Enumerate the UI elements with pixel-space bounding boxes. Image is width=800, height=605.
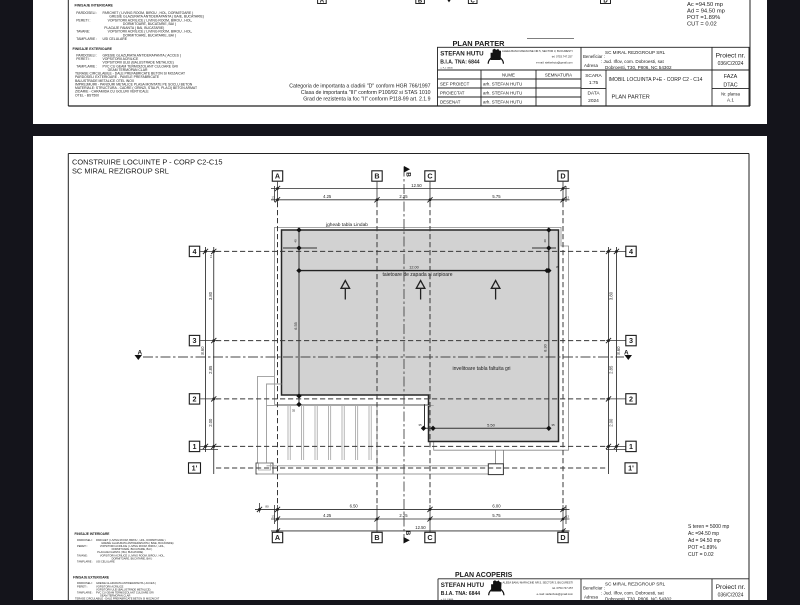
svg-text:B: B: [405, 172, 412, 177]
svg-text:e-mail: stefanhutu@gmail.com: e-mail: stefanhutu@gmail.com: [537, 592, 574, 596]
svg-text:2: 2: [629, 395, 633, 404]
svg-text:POT =1.89%: POT =1.89%: [687, 15, 720, 21]
svg-text:6.55: 6.55: [294, 322, 298, 329]
svg-text:B: B: [374, 172, 379, 181]
svg-text:35: 35: [418, 423, 422, 427]
svg-text:D: D: [560, 533, 565, 542]
svg-text:arh. STEFAN HUTU: arh. STEFAN HUTU: [483, 91, 522, 96]
svg-text:5.75: 5.75: [492, 194, 501, 199]
svg-text:13: 13: [566, 515, 570, 519]
svg-text:Adresa: Adresa: [584, 594, 598, 599]
svg-text:3: 3: [629, 336, 633, 345]
svg-text:35: 35: [292, 409, 296, 413]
svg-text:PERETI :: PERETI :: [77, 544, 88, 548]
svg-text:5.50: 5.50: [487, 422, 496, 427]
svg-text:TAMPLARIE :: TAMPLARIE :: [77, 591, 93, 595]
svg-text:tel. 0753.747.257: tel. 0753.747.257: [552, 586, 573, 590]
svg-text:6.50: 6.50: [350, 504, 359, 509]
svg-text:C: C: [471, 0, 476, 5]
svg-text:C: C: [427, 172, 432, 181]
svg-text:4.25: 4.25: [323, 194, 332, 199]
svg-text:1: 1: [193, 442, 197, 451]
svg-text:ALEEA BANU MARACINE NR.5, SEC: ALEEA BANU MARACINE NR.5, SECTOR 3, BUCU…: [503, 580, 574, 584]
svg-text:2.85: 2.85: [609, 365, 614, 374]
svg-text:IMOBIL LOCUINTA P+E - CORP C2: IMOBIL LOCUINTA P+E - CORP C2 - C14: [609, 77, 703, 83]
svg-text:: Jud. Ilfov, com. Dobroesti,: : Jud. Ilfov, com. Dobroesti, sat: [601, 590, 664, 595]
svg-text:3.80: 3.80: [208, 291, 213, 300]
svg-text:FINISAJE INTERIOARE: FINISAJE INTERIOARE: [75, 3, 114, 7]
svg-text:e-mail: stefanhutu@gmail.com: e-mail: stefanhutu@gmail.com: [536, 60, 573, 64]
svg-text:tel. 0753.747.257: tel. 0753.747.257: [552, 55, 573, 59]
svg-text:PLAN ACOPERIS: PLAN ACOPERIS: [455, 572, 513, 579]
svg-text:DORMITOARE, BUCATARIE, BAI ): DORMITOARE, BUCATARIE, BAI ): [112, 556, 153, 560]
svg-text:80: 80: [265, 505, 269, 509]
svg-text:B: B: [404, 531, 411, 536]
svg-text:SC MIRAL REZIGROUP SRL: SC MIRAL REZIGROUP SRL: [605, 50, 666, 55]
svg-text:Ad = 94.50 mp: Ad = 94.50 mp: [688, 538, 721, 544]
svg-text:PLAN PARTER: PLAN PARTER: [453, 39, 506, 48]
svg-text:3: 3: [193, 336, 197, 345]
svg-text:12.00: 12.00: [409, 266, 419, 270]
svg-text:SEMNATURA: SEMNATURA: [545, 73, 572, 78]
svg-text:40: 40: [294, 239, 298, 243]
svg-text:FINISAJE EXTERIOARE: FINISAJE EXTERIOARE: [73, 47, 113, 51]
svg-text:2.00: 2.00: [208, 418, 213, 427]
svg-text:USI CELULARE: USI CELULARE: [96, 560, 115, 564]
svg-text:5.75: 5.75: [492, 513, 501, 518]
svg-text:Adresa: Adresa: [584, 63, 598, 68]
svg-text:1: 1: [629, 442, 633, 451]
svg-text:jgheab tabla Lindab: jgheab tabla Lindab: [325, 222, 368, 228]
svg-text:B: B: [418, 0, 423, 5]
svg-text:PERETI :: PERETI :: [76, 18, 90, 22]
svg-text:12.50: 12.50: [411, 183, 422, 188]
svg-text:u. F-1 13606: u. F-1 13606: [440, 67, 453, 69]
svg-text:A: A: [275, 172, 280, 181]
svg-text:2024: 2024: [588, 98, 599, 104]
svg-text:1': 1': [628, 464, 634, 473]
svg-text:A: A: [320, 0, 325, 5]
svg-text:B.I.A. TNA: 6844: B.I.A. TNA: 6844: [441, 591, 481, 597]
svg-text:C: C: [427, 533, 432, 542]
svg-text:DORMITOARE, BUCATARIE, BAI ): DORMITOARE, BUCATARIE, BAI ): [123, 33, 176, 37]
svg-text:CONSTRUIRE LOCUINTE P - CORP C: CONSTRUIRE LOCUINTE P - CORP C2-C15: [72, 158, 222, 167]
svg-text:SEF PROIECT: SEF PROIECT: [440, 82, 470, 87]
svg-text:4: 4: [629, 247, 633, 256]
svg-text:TAVANE:: TAVANE:: [76, 30, 90, 34]
svg-text:arh. STEFAN HUTU: arh. STEFAN HUTU: [483, 100, 522, 105]
svg-text:A: A: [275, 533, 280, 542]
svg-text:2.25: 2.25: [399, 513, 408, 518]
svg-text:Dobroesti, T30, P806, NC 54302: Dobroesti, T30, P806, NC 54302: [605, 596, 672, 600]
svg-text:ALEEA BANU MARACINE NR.5, SEC: ALEEA BANU MARACINE NR.5, SECTOR 3, BUCU…: [502, 49, 573, 53]
svg-text:13: 13: [566, 195, 570, 199]
svg-text:arh. STEFAN HUTU: arh. STEFAN HUTU: [483, 82, 522, 87]
svg-text:DESENAT: DESENAT: [440, 100, 461, 105]
svg-text:USI CELULARE: USI CELULARE: [103, 37, 128, 41]
svg-text:FINISAJE INTERIOARE: FINISAJE INTERIOARE: [75, 532, 110, 536]
svg-text:STEFAN HUTU: STEFAN HUTU: [441, 582, 485, 589]
svg-text:2.85: 2.85: [208, 365, 213, 374]
svg-text:DATA: DATA: [587, 91, 600, 97]
svg-text:POT =1.89%: POT =1.89%: [688, 545, 717, 551]
svg-text:036/C/2024: 036/C/2024: [718, 592, 744, 598]
svg-text:B.I.A. TNA: 6844: B.I.A. TNA: 6844: [440, 60, 480, 66]
svg-text:SCARA: SCARA: [585, 73, 602, 79]
svg-text:1:75: 1:75: [589, 80, 599, 86]
svg-text:PERETI :: PERETI :: [76, 57, 90, 61]
svg-text:B: B: [374, 533, 379, 542]
svg-text:1': 1': [192, 464, 198, 473]
svg-text:Nr. plansa: Nr. plansa: [721, 92, 741, 97]
svg-text:6.00: 6.00: [492, 504, 501, 509]
svg-text:PARDOSELI :: PARDOSELI :: [77, 538, 93, 542]
svg-text:FAZA: FAZA: [724, 74, 738, 80]
svg-text:: Jud. Ilfov, com. Dobroesti,: : Jud. Ilfov, com. Dobroesti, sat: [601, 59, 664, 64]
svg-text:2.00: 2.00: [609, 418, 614, 427]
svg-text:CUT = 0.02: CUT = 0.02: [687, 22, 717, 28]
svg-text:2.25: 2.25: [399, 194, 408, 199]
svg-text:4.25: 4.25: [323, 513, 332, 518]
svg-text:35: 35: [551, 423, 555, 427]
svg-text:Dobroesti, T30, P806, NC 54302: Dobroesti, T30, P806, NC 54302: [605, 65, 672, 70]
svg-text:Clasa de importanta "III" conf: Clasa de importanta "III" conform P100/9…: [301, 90, 431, 96]
svg-text:TAMPLARIE :: TAMPLARIE :: [76, 37, 97, 41]
svg-text:036/C/2024: 036/C/2024: [718, 61, 744, 67]
svg-text:12.50: 12.50: [415, 525, 426, 530]
svg-text:13: 13: [271, 515, 275, 519]
svg-text:13: 13: [271, 195, 275, 199]
svg-text:D: D: [560, 172, 565, 181]
svg-text:TAMPLARIE :: TAMPLARIE :: [76, 64, 97, 68]
svg-text:S teren = 5000 mp: S teren = 5000 mp: [688, 524, 729, 530]
svg-text:Proiect nr.: Proiect nr.: [716, 52, 746, 59]
svg-text:Grad de rezistenta la foc "II": Grad de rezistenta la foc "II" conform P…: [303, 97, 430, 103]
svg-text:Ac =94.50 mp: Ac =94.50 mp: [687, 2, 723, 8]
svg-text:8.30: 8.30: [544, 344, 548, 351]
svg-text:OTEL - BST500: OTEL - BST500: [75, 93, 99, 97]
svg-text:D: D: [603, 0, 608, 5]
svg-text:PARDOSELI :: PARDOSELI :: [76, 11, 97, 15]
svg-text:invelitoare tabla faltuita gri: invelitoare tabla faltuita gri: [452, 366, 510, 372]
svg-text:35: 35: [556, 265, 560, 269]
svg-text:13: 13: [209, 255, 213, 259]
svg-text:SC MIRAL REZIGROUP SRL: SC MIRAL REZIGROUP SRL: [605, 581, 666, 586]
svg-text:Categoria de importanta a clad: Categoria de importanta a cladirii "D" c…: [289, 84, 430, 90]
svg-text:Ad = 94.50 mp: Ad = 94.50 mp: [687, 9, 725, 15]
svg-text:8.60: 8.60: [616, 346, 621, 355]
svg-text:TAVANE:: TAVANE:: [77, 553, 88, 557]
svg-text:DTAC: DTAC: [723, 83, 737, 89]
svg-text:STEFAN HUTU: STEFAN HUTU: [440, 50, 484, 57]
svg-text:Proiect nr.: Proiect nr.: [716, 584, 746, 591]
svg-text:FINISAJE EXTERIOARE: FINISAJE EXTERIOARE: [73, 576, 109, 580]
svg-text:8.60: 8.60: [200, 346, 205, 355]
svg-text:4: 4: [193, 247, 197, 256]
svg-text:taietoare de zapada si aripioa: taietoare de zapada si aripioare: [382, 272, 452, 278]
svg-text:3.80: 3.80: [609, 291, 614, 300]
svg-text:PERETI :: PERETI :: [77, 584, 88, 588]
svg-text:SC MIRAL REZIGROUP SRL: SC MIRAL REZIGROUP SRL: [72, 167, 169, 176]
svg-text:CUT = 0.02: CUT = 0.02: [688, 552, 714, 558]
svg-text:40: 40: [543, 239, 547, 243]
svg-text:NUME: NUME: [502, 73, 515, 78]
svg-text:Ac =94.50 mp: Ac =94.50 mp: [688, 531, 719, 537]
svg-text:PLAN PARTER: PLAN PARTER: [612, 95, 650, 101]
svg-text:PROIECTAT: PROIECTAT: [440, 91, 465, 96]
svg-text:2: 2: [193, 395, 197, 404]
svg-text:A.1: A.1: [727, 98, 734, 103]
svg-text:TAMPLARIE :: TAMPLARIE :: [77, 560, 93, 564]
